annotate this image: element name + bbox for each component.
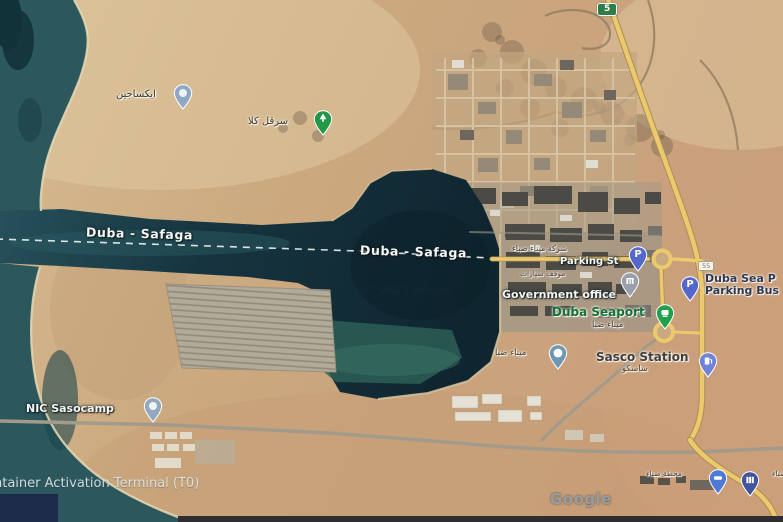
place-pin-icon: [173, 84, 193, 110]
bottom-bar-fragment: [178, 516, 783, 522]
gas-pump-icon: [698, 352, 718, 378]
duba-sea-parking-pin[interactable]: P: [680, 276, 700, 302]
duba-seaport-pin[interactable]: [655, 304, 675, 330]
building-icon: [740, 471, 760, 497]
duba-port-pin[interactable]: [548, 344, 568, 370]
ferry-icon: [655, 304, 675, 330]
route-number-badge[interactable]: 55: [698, 261, 714, 271]
parking-letter: P: [680, 279, 700, 291]
nic-sasocamp-pin[interactable]: [143, 397, 163, 423]
satellite-terrain: [0, 0, 783, 522]
sasco-station-pin[interactable]: [698, 352, 718, 378]
parking-st-pin[interactable]: P: [628, 246, 648, 272]
bed-icon: [708, 469, 728, 495]
tree-icon: [313, 110, 333, 136]
green-place-pin[interactable]: [313, 110, 333, 136]
highway-shield-badge[interactable]: 5: [597, 3, 617, 16]
lodging-pin[interactable]: [708, 469, 728, 495]
place-pin-icon: [548, 344, 568, 370]
satellite-map[interactable]: 5 55 Duba - Safaga Duba - Safaga ايكساجي…: [0, 0, 783, 522]
government-office-pin[interactable]: [620, 272, 640, 298]
station-building-pin[interactable]: [740, 471, 760, 497]
building-icon: [620, 272, 640, 298]
parking-letter: P: [628, 249, 648, 261]
oxagen-pin[interactable]: [173, 84, 193, 110]
place-pin-icon: [143, 397, 163, 423]
bottom-left-panel-fragment: [0, 494, 58, 522]
